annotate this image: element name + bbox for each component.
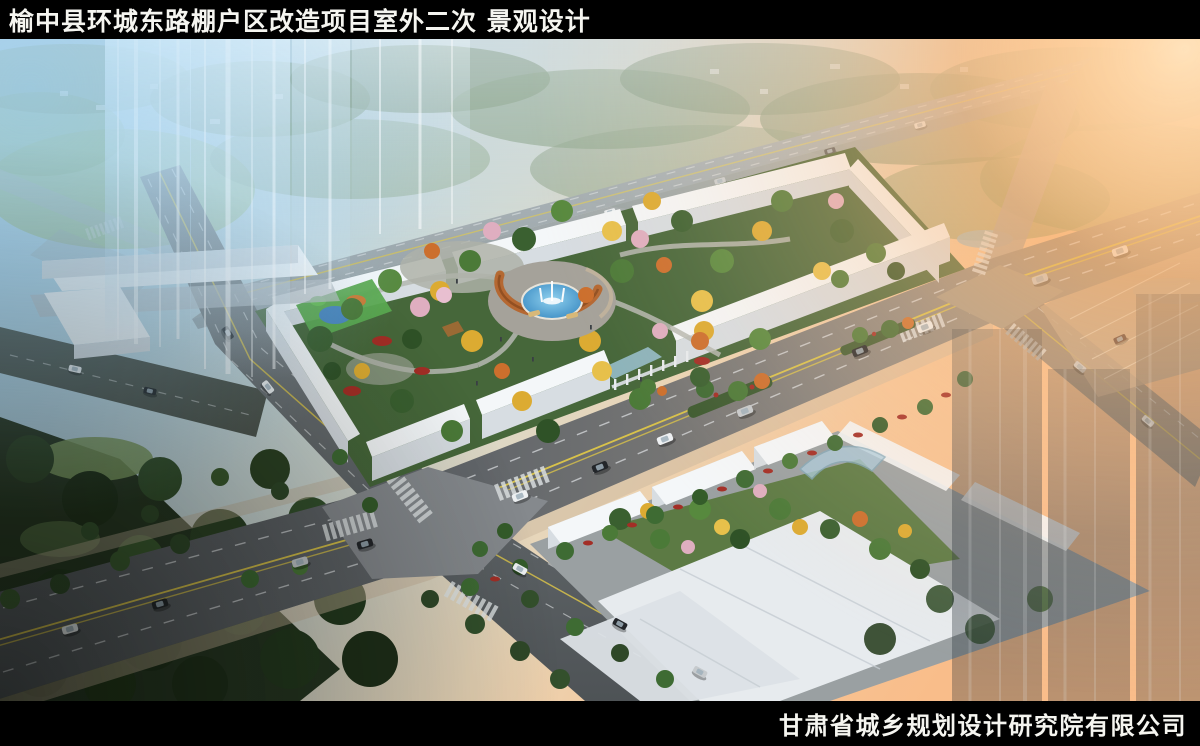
corner-vignette <box>0 39 1200 701</box>
title-bar: 榆中县环城东路棚户区改造项目室外二次 景观设计 <box>0 0 1200 39</box>
company-name: 甘肃省城乡规划设计研究院有限公司 <box>779 706 1200 741</box>
credit-bar: 甘肃省城乡规划设计研究院有限公司 <box>0 701 1200 746</box>
poster-frame: 榆中县环城东路棚户区改造项目室外二次 景观设计 <box>0 0 1200 746</box>
aerial-rendering <box>0 39 1200 701</box>
poster-title: 榆中县环城东路棚户区改造项目室外二次 景观设计 <box>0 2 591 38</box>
